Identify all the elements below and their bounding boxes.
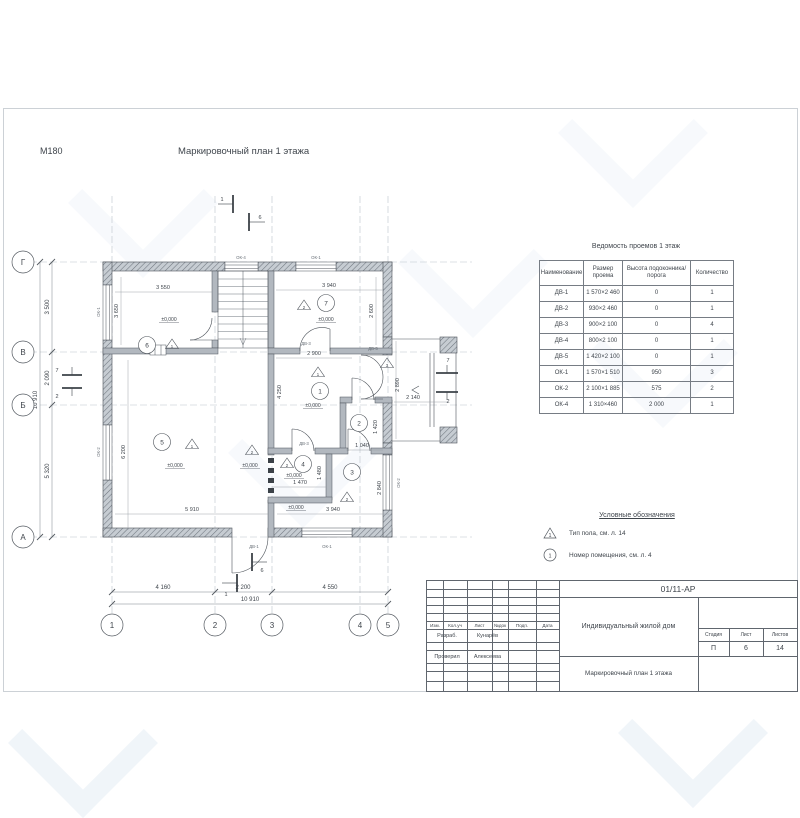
- svg-text:±0,000: ±0,000: [242, 463, 257, 469]
- svg-text:4: 4: [358, 621, 363, 630]
- svg-text:2: 2: [446, 399, 449, 405]
- tb-col-list: Лист: [467, 621, 492, 629]
- dim-lobby-height: 1 420: [373, 420, 379, 434]
- schedule-cell: ОК-2: [540, 382, 584, 398]
- svg-text:7: 7: [446, 358, 449, 364]
- schedule-header-sill: Высота подоконника/порога: [623, 261, 691, 286]
- stairs: [218, 271, 268, 348]
- svg-text:А: А: [20, 533, 26, 542]
- svg-text:7: 7: [324, 300, 328, 307]
- schedule-header-size: Размер проема: [584, 261, 623, 286]
- dim-room6-width: 3 550: [156, 285, 170, 291]
- schedule-cell: 575: [623, 382, 691, 398]
- dim-porch-height: 2 890: [395, 378, 401, 392]
- interior-dim-lines: [115, 277, 448, 530]
- svg-text:6: 6: [258, 215, 261, 221]
- schedule-cell: 1: [691, 398, 734, 414]
- tb-stage-label: Стадия: [698, 628, 729, 641]
- legend-item-text: Номер помещения, см. л. 4: [569, 552, 652, 559]
- svg-text:6: 6: [145, 342, 149, 349]
- floor-type-triangle-icon: 1: [543, 527, 557, 539]
- schedule-cell: ОК-1: [540, 366, 584, 382]
- schedule-cell: 0: [623, 302, 691, 318]
- schedule-cell: 1 310×460: [584, 398, 623, 414]
- schedule-cell: 1: [691, 334, 734, 350]
- openings-schedule-table: Наименование Размер проема Высота подоко…: [539, 260, 734, 414]
- schedule-cell: ОК-4: [540, 398, 584, 414]
- schedule-row: ДВ-11 570×2 46001: [540, 286, 734, 302]
- schedule-row: ДВ-4800×2 10001: [540, 334, 734, 350]
- svg-text:±0,000: ±0,000: [318, 317, 333, 323]
- tb-doc-number: 01/11-АР: [559, 581, 797, 597]
- tb-project-name: Индивидуальный жилой дом: [559, 597, 698, 656]
- room-number-circle-icon: 1: [543, 548, 557, 562]
- opening-label-dv5: ДВ-5: [368, 346, 378, 351]
- dim-hall-width: 2 900: [307, 351, 321, 357]
- dim-bottom-total: 10 910: [241, 597, 260, 603]
- legend-title: Условные обозначения: [539, 512, 735, 519]
- dim-left-1: 3 500: [45, 299, 51, 315]
- tb-role-developed: Разраб.: [427, 629, 467, 642]
- schedule-row: ДВ-51 420×2 10001: [540, 350, 734, 366]
- dim-room5-width: 5 910: [185, 507, 199, 513]
- tb-col-koluch: Кол.уч: [443, 621, 467, 629]
- schedule-cell: 1: [691, 302, 734, 318]
- svg-text:1: 1: [318, 388, 322, 395]
- tb-sheet-value: 6: [729, 641, 763, 656]
- tb-name-developed: Кунарёв: [467, 629, 508, 642]
- opening-labels: ОК-4 ОК-1 ОК-1 ОК-2 ДВ-1 ОК-1 ДВ-5 ОК-2 …: [96, 255, 401, 549]
- schedule-cell: ДВ-1: [540, 286, 584, 302]
- lintel-marks: [268, 458, 274, 493]
- legend-item-text: Тип пола, см. л. 14: [569, 530, 626, 537]
- dim-left-2: 2 090: [45, 370, 51, 386]
- scale-label: М180: [40, 146, 63, 156]
- tb-sheet-label: Лист: [729, 628, 763, 641]
- dim-room6-height: 3 650: [114, 304, 120, 318]
- plan-title: Маркировочный план 1 этажа: [178, 146, 309, 157]
- opening-label-dv3-b: ДВ-3: [299, 441, 309, 446]
- svg-text:6: 6: [260, 568, 263, 574]
- axis-bubble-labels-bottom: 1 2 3 4 5: [110, 621, 391, 630]
- porch: [392, 337, 457, 443]
- svg-text:±0,000: ±0,000: [286, 473, 301, 479]
- tb-sheets-label: Листов: [763, 628, 797, 641]
- svg-text:±0,000: ±0,000: [305, 403, 320, 409]
- tb-role-checked: Проверил: [427, 650, 467, 663]
- tb-col-izm: Изм.: [427, 621, 443, 629]
- schedule-cell: 1: [691, 350, 734, 366]
- opening-label-ok4: ОК-4: [236, 255, 246, 260]
- svg-text:Г: Г: [21, 258, 26, 267]
- opening-label-dv1: ДВ-1: [249, 544, 259, 549]
- schedule-cell: ДВ-5: [540, 350, 584, 366]
- dim-wc-height: 1 480: [317, 466, 323, 480]
- schedule-cell: 3: [691, 366, 734, 382]
- opening-label-ok2-right: ОК-2: [396, 478, 401, 488]
- svg-text:7: 7: [55, 368, 58, 374]
- interior-walls: [103, 271, 392, 537]
- svg-text:2: 2: [55, 394, 58, 400]
- axis-grid-lines: [30, 196, 472, 616]
- schedule-cell: 900×2 100: [584, 318, 623, 334]
- schedule-cell: 1 570×2 460: [584, 286, 623, 302]
- level-marks: ±0,000 ±0,000 ±0,000 ±0,000 ±0,000 ±0,00…: [161, 317, 333, 511]
- svg-text:5: 5: [386, 621, 391, 630]
- schedule-cell: 950: [623, 366, 691, 382]
- legend: Условные обозначения 1 Тип пола, см. л. …: [539, 512, 735, 571]
- dim-room7-height: 2 600: [369, 304, 375, 318]
- tb-sheets-value: 14: [763, 641, 797, 656]
- schedule-row: ДВ-2930×2 46001: [540, 302, 734, 318]
- dim-wc-width: 1 470: [293, 480, 307, 486]
- schedule-cell: 1: [691, 286, 734, 302]
- tb-drawing-title: Маркировочный план 1 этажа: [559, 656, 698, 691]
- exterior-dim-chains: [40, 262, 388, 604]
- schedule-row: ОК-41 310×4602 0001: [540, 398, 734, 414]
- svg-text:1: 1: [549, 533, 552, 539]
- dim-hall-height: 4 250: [277, 385, 283, 399]
- legend-item: 1 Тип пола, см. л. 14: [543, 527, 735, 539]
- svg-text:4: 4: [301, 461, 305, 468]
- schedule-row: ОК-22 100×1 8855752: [540, 382, 734, 398]
- dim-porch-width: 2 140: [406, 395, 420, 401]
- opening-label-ok1-bottom: ОК-1: [322, 544, 332, 549]
- schedule-header-qty: Количество: [691, 261, 734, 286]
- schedule-cell: 4: [691, 318, 734, 334]
- legend-item: 1 Номер помещения, см. л. 4: [543, 548, 735, 562]
- tb-col-podp: Подп.: [508, 621, 536, 629]
- axis-bubbles-bottom: [101, 614, 399, 636]
- svg-text:±0,000: ±0,000: [161, 317, 176, 323]
- schedule-cell: 0: [623, 286, 691, 302]
- schedule-cell: 0: [623, 334, 691, 350]
- schedule-cell: ДВ-4: [540, 334, 584, 350]
- tb-col-data: Дата: [536, 621, 559, 629]
- svg-text:±0,000: ±0,000: [167, 463, 182, 469]
- svg-text:1: 1: [220, 197, 223, 203]
- schedule-title: Ведомость проемов 1 этаж: [539, 243, 733, 250]
- svg-text:1: 1: [224, 592, 227, 598]
- schedule-cell: 1 420×2 100: [584, 350, 623, 366]
- svg-text:2: 2: [213, 621, 218, 630]
- svg-text:1: 1: [110, 621, 115, 630]
- opening-label-ok2-left: ОК-2: [96, 447, 101, 457]
- schedule-cell: 930×2 460: [584, 302, 623, 318]
- dim-room5-height: 6 200: [121, 445, 127, 459]
- svg-text:1: 1: [548, 553, 551, 559]
- dim-room7-width: 3 940: [322, 283, 336, 289]
- exterior-dim-texts: 4 160 2 200 4 550 10 910 3 500 2 090 5 3…: [33, 299, 338, 603]
- tb-name-checked: Алексеева: [467, 650, 508, 663]
- schedule-cell: 800×2 100: [584, 334, 623, 350]
- schedule-cell: 2 100×1 885: [584, 382, 623, 398]
- schedule-cell: 0: [623, 350, 691, 366]
- dim-bottom-3: 4 550: [322, 585, 338, 591]
- dim-room3-height: 2 840: [377, 481, 383, 495]
- schedule-row: ДВ-3900×2 10004: [540, 318, 734, 334]
- svg-text:3: 3: [270, 621, 275, 630]
- schedule-cell: 2: [691, 382, 734, 398]
- svg-text:5: 5: [160, 439, 164, 446]
- svg-text:3: 3: [350, 469, 354, 476]
- schedule-cell: ДВ-3: [540, 318, 584, 334]
- svg-text:В: В: [20, 348, 25, 357]
- schedule-row: ОК-11 570×1 5109503: [540, 366, 734, 382]
- svg-text:Б: Б: [20, 401, 25, 410]
- schedule-cell: ДВ-2: [540, 302, 584, 318]
- schedule-cell: 0: [623, 318, 691, 334]
- dim-lobby-width: 1 040: [355, 443, 369, 449]
- title-block: Изм. Кол.уч Лист №док Подп. Дата Разраб.…: [426, 580, 798, 692]
- schedule-cell: 1 570×1 510: [584, 366, 623, 382]
- svg-text:2: 2: [357, 420, 361, 427]
- dim-room3-width: 3 940: [326, 507, 340, 513]
- schedule-table-body: ДВ-11 570×2 46001ДВ-2930×2 46001ДВ-3900×…: [540, 286, 734, 414]
- tb-col-ndok: №док: [492, 621, 508, 629]
- schedule-cell: 2 000: [623, 398, 691, 414]
- opening-label-ok1-left: ОК-1: [96, 307, 101, 317]
- schedule-header-row: Наименование Размер проема Высота подоко…: [540, 261, 734, 286]
- svg-text:±0,000: ±0,000: [288, 505, 303, 511]
- schedule-header-name: Наименование: [540, 261, 584, 286]
- opening-label-ok1: ОК-1: [311, 255, 321, 260]
- dim-bottom-1: 4 160: [155, 585, 171, 591]
- dim-left-3: 5 320: [45, 463, 51, 479]
- opening-label-dv3-a: ДВ-3: [301, 341, 311, 346]
- axis-bubbles-left: [12, 251, 34, 548]
- tb-stage-value: П: [698, 641, 729, 656]
